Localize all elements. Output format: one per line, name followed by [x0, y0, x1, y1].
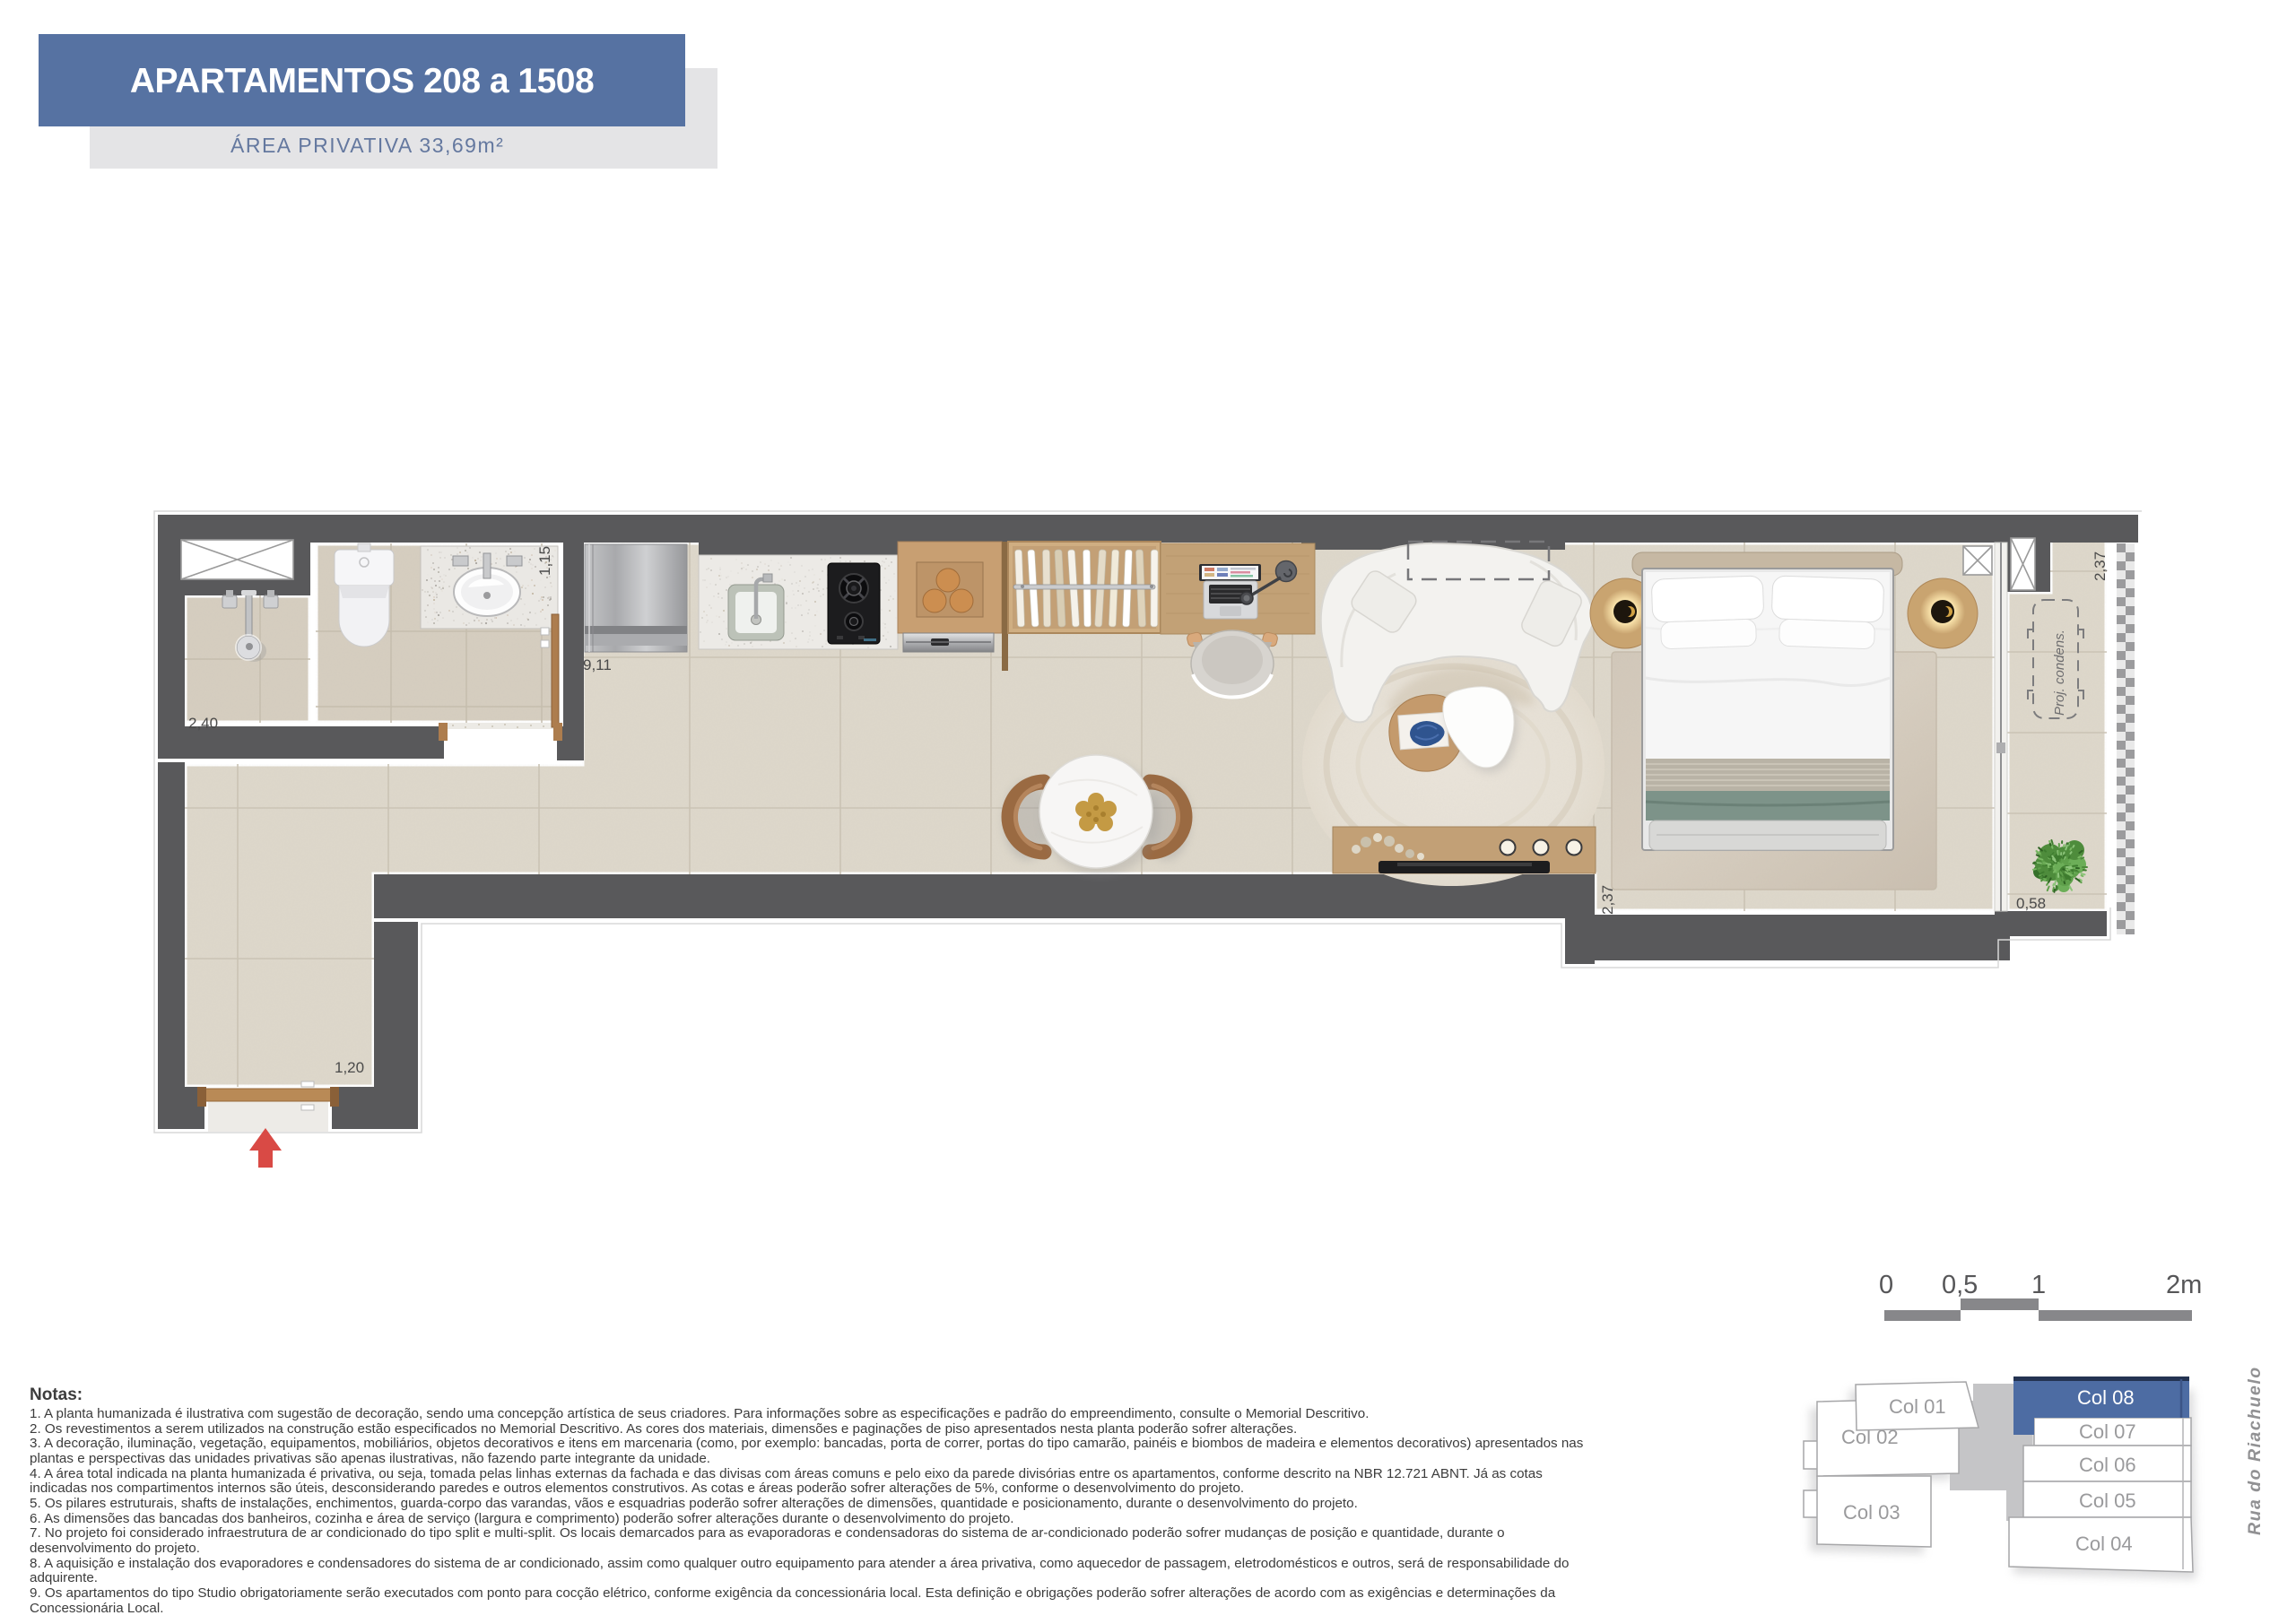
- svg-text:2,37: 2,37: [1599, 885, 1616, 915]
- svg-text:2,40: 2,40: [188, 715, 218, 732]
- svg-text:0,58: 0,58: [2016, 895, 2046, 912]
- svg-text:2m: 2m: [2166, 1271, 2202, 1299]
- svg-text:2,37: 2,37: [2092, 551, 2109, 581]
- svg-text:9,11: 9,11: [583, 656, 612, 673]
- svg-text:0: 0: [1879, 1271, 1893, 1299]
- svg-text:Proj. condens.: Proj. condens.: [2052, 630, 2067, 716]
- svg-text:1,15: 1,15: [536, 546, 553, 576]
- svg-text:0,5: 0,5: [1942, 1271, 1978, 1299]
- svg-text:1: 1: [2031, 1271, 2046, 1299]
- svg-text:1,20: 1,20: [335, 1059, 364, 1076]
